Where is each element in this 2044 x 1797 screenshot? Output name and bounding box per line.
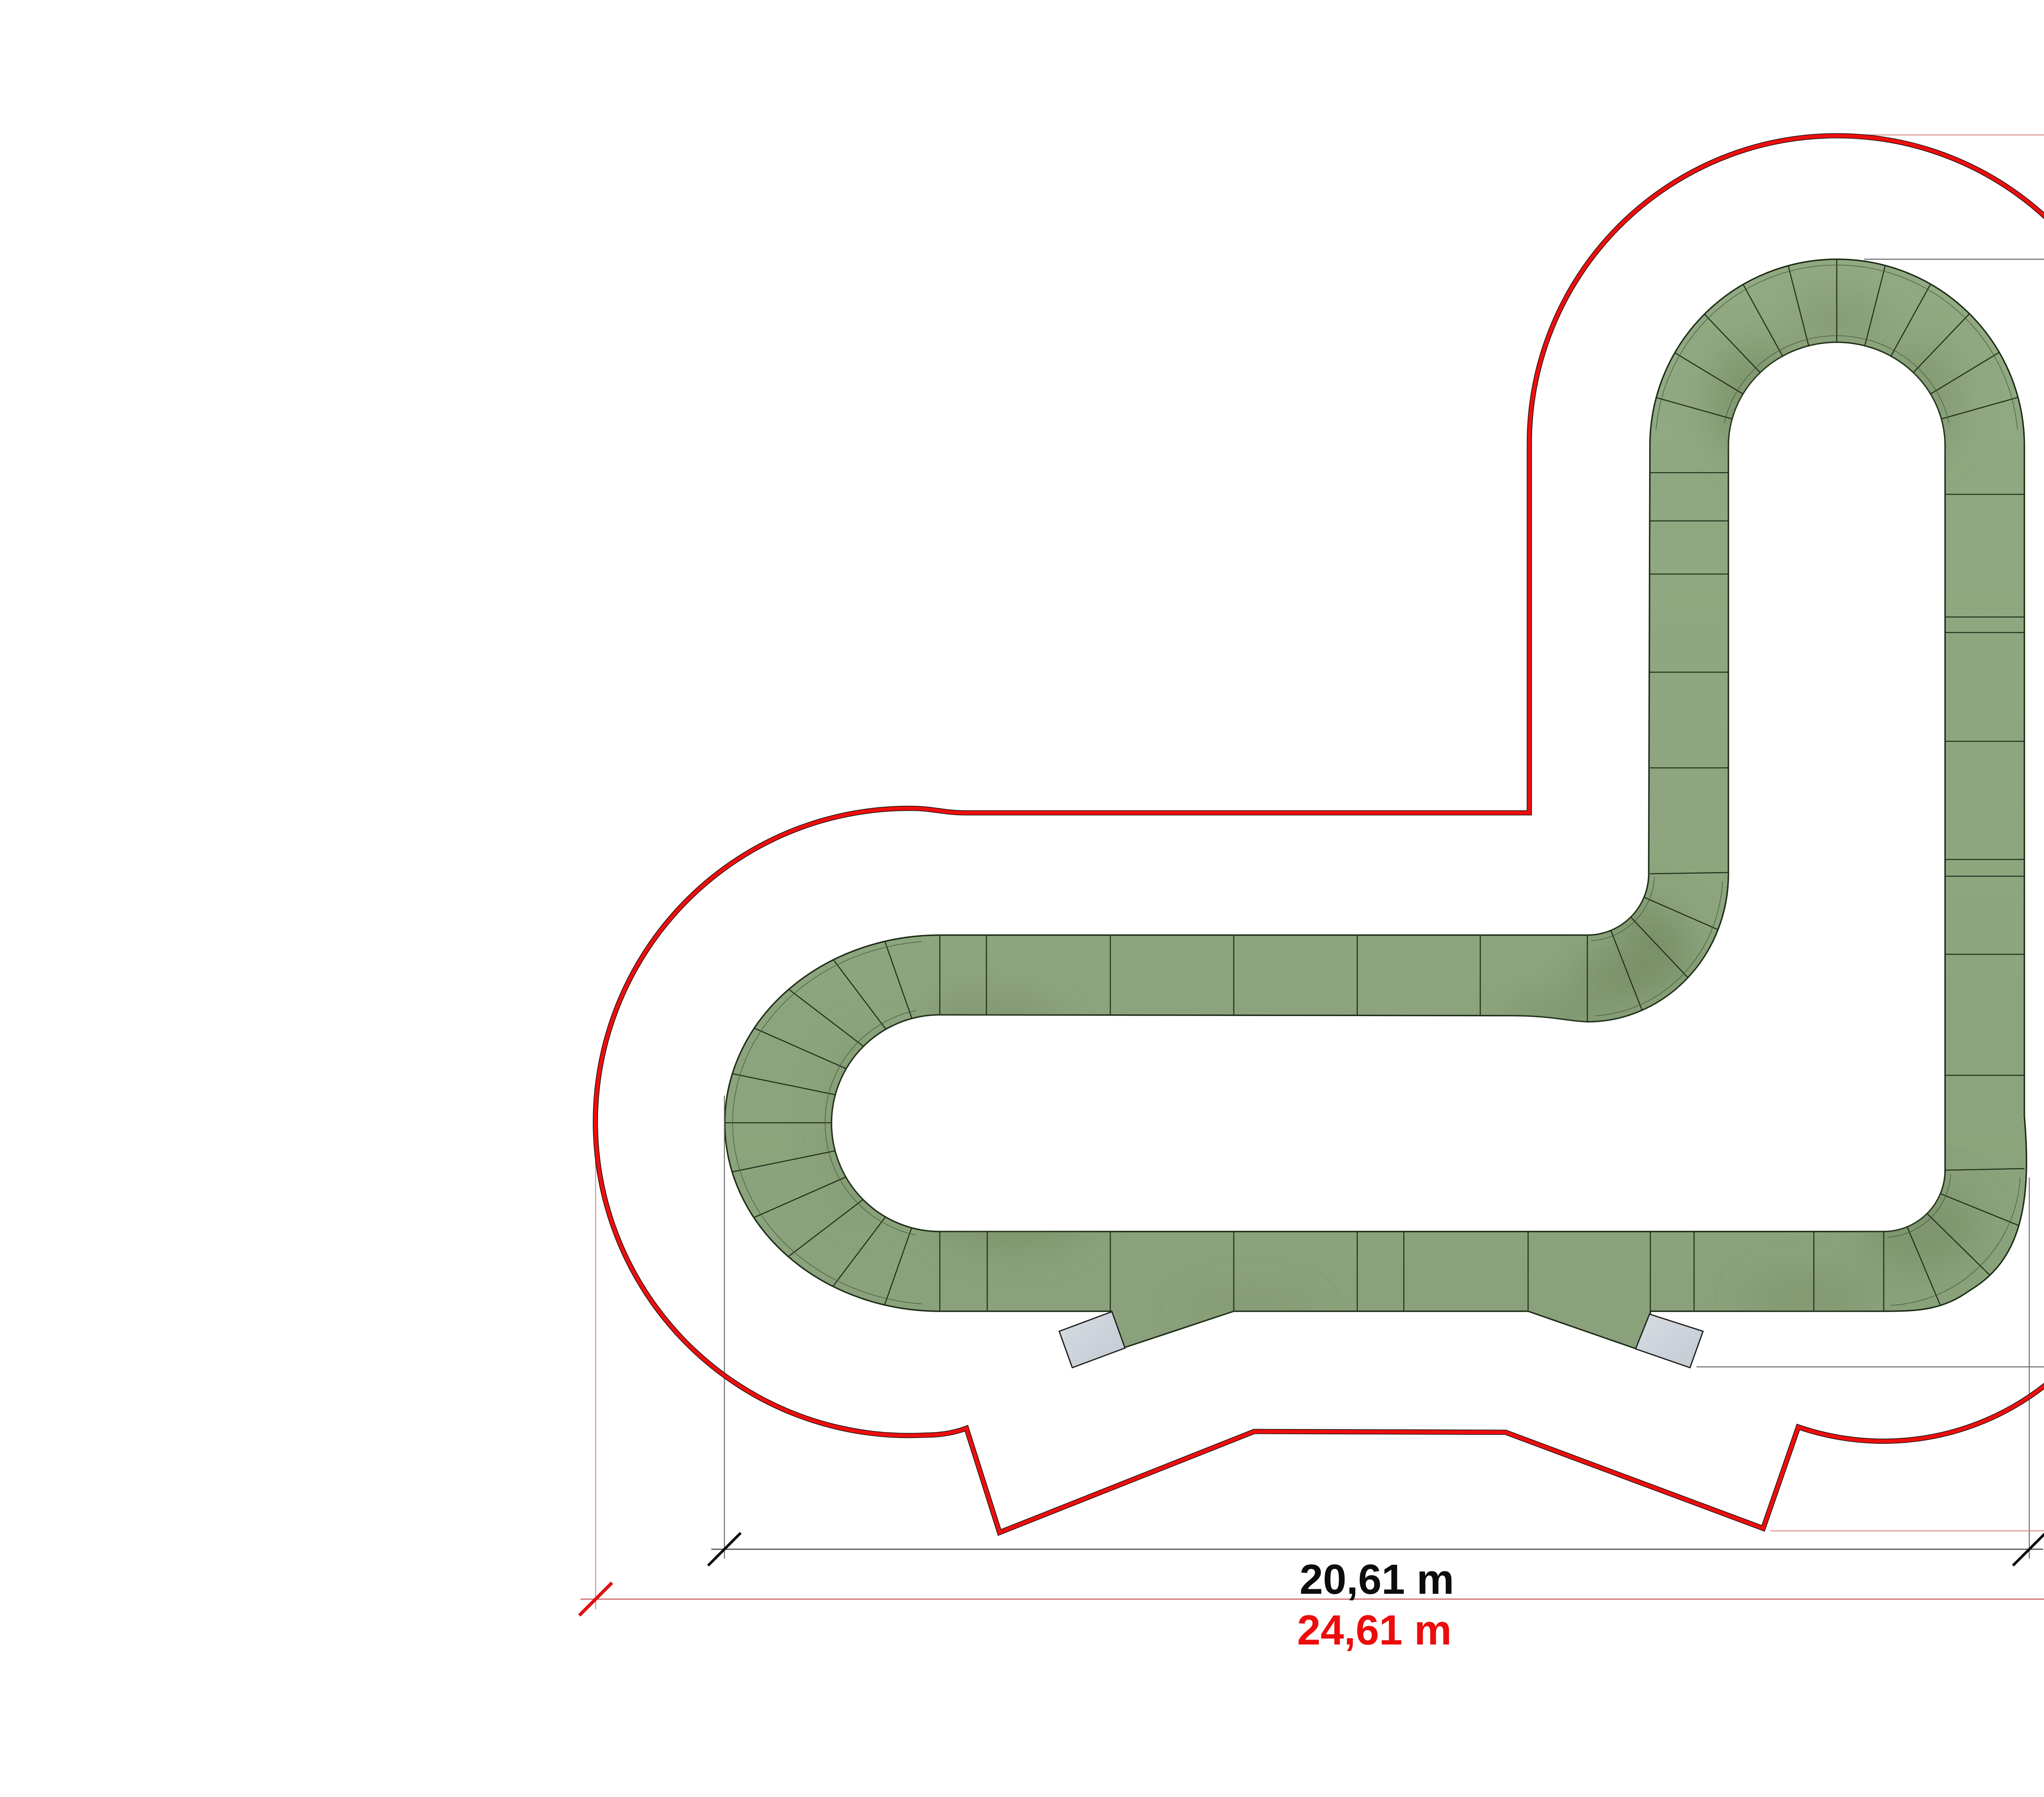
- svg-text:20,61 m: 20,61 m: [1300, 1556, 1454, 1603]
- svg-text:24,61 m: 24,61 m: [1297, 1606, 1452, 1653]
